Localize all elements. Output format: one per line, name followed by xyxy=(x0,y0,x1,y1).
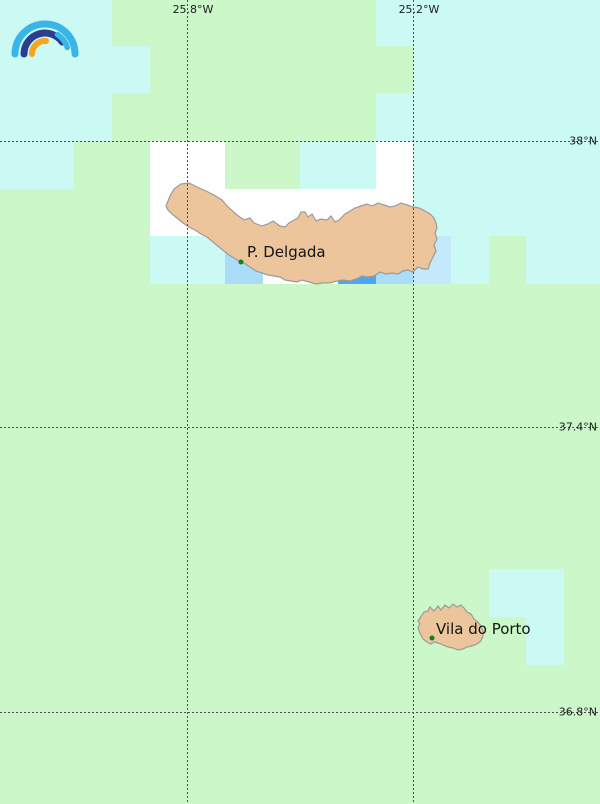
longitude-label: 25.2°W xyxy=(399,3,440,16)
longitude-label: 25.8°W xyxy=(173,3,214,16)
city-label: Vila do Porto xyxy=(436,622,531,637)
latitude-label: 37.4°N xyxy=(559,421,597,434)
weather-service-logo-icon xyxy=(5,10,83,58)
weather-map: 25.8°W25.2°W38°N37.4°N36.8°NP. DelgadaVi… xyxy=(0,0,600,804)
city-dot xyxy=(430,636,435,641)
latitude-label: 36.8°N xyxy=(559,706,597,719)
logo-orange-arc xyxy=(32,41,46,54)
labels-layer: 25.8°W25.2°W38°N37.4°N36.8°NP. DelgadaVi… xyxy=(0,0,600,804)
city-label: P. Delgada xyxy=(247,245,326,260)
latitude-label: 38°N xyxy=(569,135,597,148)
city-dot xyxy=(239,260,244,265)
